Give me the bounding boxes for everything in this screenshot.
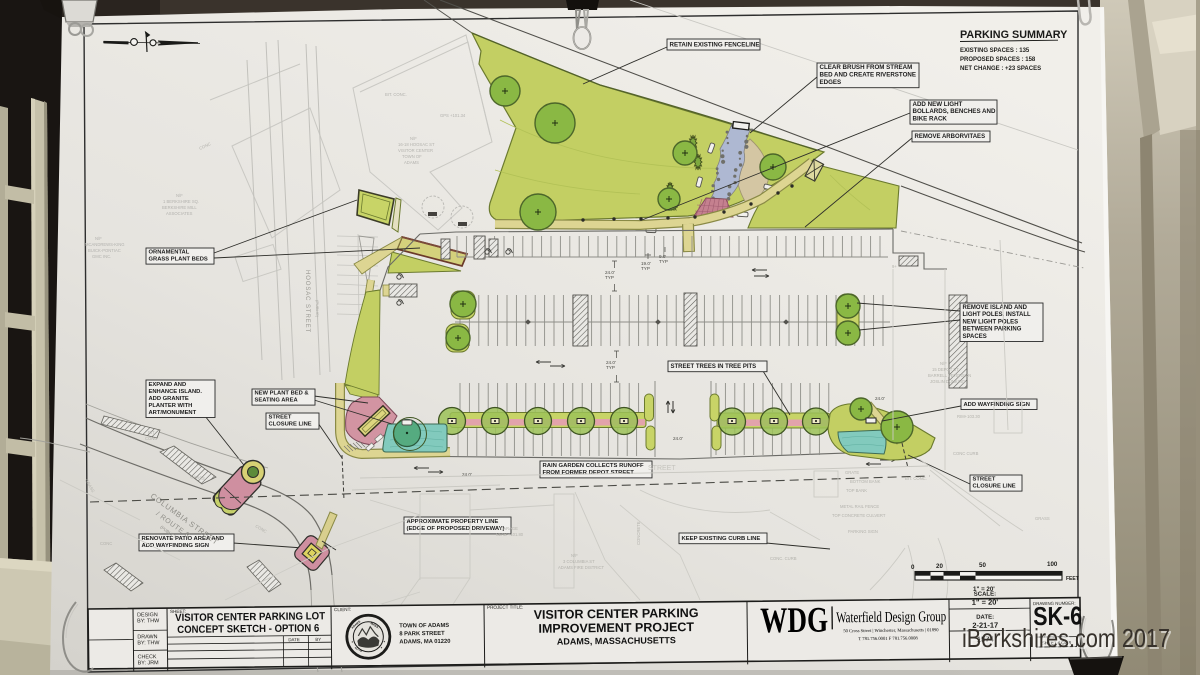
svg-text:MCANDREWS-KING: MCANDREWS-KING: [85, 242, 125, 247]
svg-text:BIT. CONC.: BIT. CONC.: [905, 476, 927, 481]
svg-text:SPACES: SPACES: [963, 334, 987, 340]
svg-text:REMOVE ISLAND AND: REMOVE ISLAND AND: [963, 305, 1028, 311]
svg-text:HOOSAC STREET: HOOSAC STREET: [304, 270, 310, 333]
svg-text:50: 50: [979, 562, 986, 569]
svg-text:Waterfield Design Group: Waterfield Design Group: [836, 609, 946, 626]
svg-text:FEET: FEET: [1066, 576, 1079, 582]
svg-text:(EDGE OF PROPOSED DRIVEWAY): (EDGE OF PROPOSED DRIVEWAY): [407, 526, 505, 532]
svg-text:BY: THW: BY: THW: [137, 640, 160, 646]
svg-text:EDGES: EDGES: [820, 79, 842, 86]
svg-text:NEW PLANT BED &: NEW PLANT BED &: [255, 391, 309, 397]
svg-text:KEEP EXISTING CURB LINE: KEEP EXISTING CURB LINE: [682, 536, 761, 542]
svg-text:PARKING SUMMARY: PARKING SUMMARY: [960, 29, 1068, 41]
svg-text:BIT.: BIT.: [148, 430, 155, 435]
svg-text:ENHANCE ISLAND.: ENHANCE ISLAND.: [149, 389, 203, 395]
svg-text:CONC. CURB: CONC. CURB: [770, 556, 797, 561]
svg-text:ORNAMENTAL: ORNAMENTAL: [149, 250, 190, 256]
svg-text:NEW LIGHT POLES: NEW LIGHT POLES: [963, 319, 1019, 325]
svg-text:PARKING SIGN: PARKING SIGN: [848, 529, 878, 534]
svg-text:TYP: TYP: [605, 275, 614, 280]
svg-text:N/F: N/F: [571, 553, 578, 558]
svg-text:BUICK-PONTIAC: BUICK-PONTIAC: [88, 248, 121, 253]
svg-text:TYP: TYP: [659, 259, 668, 264]
svg-text:CLEAR BRUSH FROM STREAM: CLEAR BRUSH FROM STREAM: [820, 64, 913, 71]
svg-text:TYP: TYP: [606, 365, 615, 370]
svg-text:GMC INC.: GMC INC.: [92, 254, 111, 259]
svg-text:T 781.756.0001 F 781.756.000: T 781.756.0001 F 781.756.0008: [858, 635, 918, 641]
svg-text:STREET TREES IN TREE PITS: STREET TREES IN TREE PITS: [671, 364, 757, 370]
svg-text:METAL RAIL FENCE: METAL RAIL FENCE: [840, 504, 879, 509]
svg-text:TYP: TYP: [641, 266, 650, 271]
svg-text:SLAB +101.80: SLAB +101.80: [496, 532, 524, 537]
svg-text:CLIENT:: CLIENT:: [334, 607, 351, 612]
svg-text:BARRELL PETERSON: BARRELL PETERSON: [928, 373, 971, 378]
svg-text:9+: 9+: [892, 264, 897, 269]
svg-text:CLOSURE LINE: CLOSURE LINE: [269, 421, 312, 427]
svg-text:iBerkshires.com 2017: iBerkshires.com 2017: [962, 623, 1170, 653]
svg-text:BED AND CREATE RIVERSTONE: BED AND CREATE RIVERSTONE: [820, 72, 917, 79]
svg-text:24.0': 24.0': [875, 396, 885, 401]
svg-text:ADAMS: ADAMS: [404, 160, 419, 165]
svg-text:GARAGE: GARAGE: [500, 526, 518, 531]
svg-text:24.0': 24.0': [673, 436, 683, 441]
svg-text:3 COLUMBIA ST: 3 COLUMBIA ST: [563, 559, 595, 564]
svg-text:100: 100: [1047, 561, 1058, 568]
svg-text:LIGHT POLES. INSTALL: LIGHT POLES. INSTALL: [963, 312, 1032, 318]
svg-text:BOLLARDS, BENCHES AND: BOLLARDS, BENCHES AND: [913, 108, 996, 115]
svg-text:8 PARK STREET: 8 PARK STREET: [399, 631, 445, 638]
svg-text:RETAIN EXISTING FENCELINE: RETAIN EXISTING FENCELINE: [670, 41, 760, 48]
svg-text:TOP BANK: TOP BANK: [846, 488, 867, 493]
svg-text:WDG: WDG: [760, 599, 828, 640]
svg-text:TOP CONCRETE CULVERT: TOP CONCRETE CULVERT: [832, 513, 886, 518]
svg-text:REMOVE ARBORVITAES: REMOVE ARBORVITAES: [915, 134, 986, 140]
svg-text:1" = 20': 1" = 20': [972, 598, 999, 607]
svg-text:EXPAND AND: EXPAND AND: [149, 382, 187, 388]
svg-text:STREET: STREET: [648, 465, 676, 472]
svg-text:CONC: CONC: [100, 541, 112, 546]
svg-text:1 BERKSHIRE SQ.: 1 BERKSHIRE SQ.: [163, 199, 199, 204]
svg-text:16-18 HOOSAC ST: 16-18 HOOSAC ST: [398, 142, 435, 147]
svg-text:PROPOSED SPACES : 158: PROPOSED SPACES : 158: [960, 57, 1036, 63]
svg-text:STREET: STREET: [269, 415, 292, 421]
svg-text:CONC: CONC: [145, 436, 157, 441]
svg-text:PROJECT TITLE:: PROJECT TITLE:: [487, 604, 523, 609]
svg-text:VISITOR CENTER: VISITOR CENTER: [398, 148, 433, 153]
svg-text:GRATE: GRATE: [845, 470, 859, 475]
svg-text:N/F: N/F: [410, 136, 417, 141]
svg-text:BETWEEN PARKING: BETWEEN PARKING: [963, 327, 1022, 333]
svg-text:ADD WAYFINDING SIGN: ADD WAYFINDING SIGN: [964, 402, 1030, 408]
svg-text:GPS +101.34: GPS +101.34: [440, 113, 466, 118]
svg-text:BOTTOM BANK: BOTTOM BANK: [850, 479, 881, 484]
svg-text:N/F: N/F: [940, 361, 947, 366]
svg-text:JOSLIN DUNKING: JOSLIN DUNKING: [930, 379, 965, 384]
svg-text:BIKE RACK: BIKE RACK: [913, 115, 948, 122]
svg-text:BIT. CONC.: BIT. CONC.: [385, 92, 407, 97]
svg-text:EXISTING SPACES : 135: EXISTING SPACES : 135: [960, 48, 1030, 54]
svg-text:ASSOCIATES: ASSOCIATES: [166, 211, 193, 216]
svg-text:BERKSHIRE MILL: BERKSHIRE MILL: [162, 205, 197, 210]
svg-text:N/F: N/F: [95, 236, 102, 241]
svg-text:ADAMS FIRE DISTRICT: ADAMS FIRE DISTRICT: [558, 565, 605, 570]
svg-text:CONCEPT SKETCH - OPTION 6: CONCEPT SKETCH - OPTION 6: [177, 622, 319, 636]
svg-text:TOWN OF: TOWN OF: [402, 154, 422, 159]
svg-text:ADD GRANITE: ADD GRANITE: [149, 396, 189, 402]
svg-text:CONC CURB: CONC CURB: [953, 451, 979, 456]
svg-text:BY: THW: BY: THW: [137, 618, 160, 624]
svg-text:CONCRETE: CONCRETE: [636, 521, 641, 545]
svg-text:PLANTER WITH: PLANTER WITH: [149, 403, 193, 409]
svg-text:BY: JRM: BY: JRM: [138, 660, 160, 666]
svg-text:SEATING AREA: SEATING AREA: [255, 397, 299, 403]
svg-text:DATE: DATE: [288, 637, 300, 642]
svg-text:NET CHANGE : +23 SPACES: NET CHANGE : +23 SPACES: [960, 66, 1041, 72]
svg-text:CLOSURE LINE: CLOSURE LINE: [973, 483, 1016, 489]
svg-text:GRASS: GRASS: [1035, 516, 1050, 521]
svg-text:ART/MONUMENT: ART/MONUMENT: [149, 410, 197, 416]
svg-text:RAIN GARDEN COLLECTS RUNOFF: RAIN GARDEN COLLECTS RUNOFF: [543, 463, 645, 469]
svg-text:20: 20: [936, 563, 943, 570]
svg-text:0: 0: [911, 564, 915, 571]
svg-text:N/F: N/F: [176, 193, 183, 198]
svg-text:BY: BY: [315, 637, 321, 642]
svg-text:STREET: STREET: [973, 477, 996, 483]
svg-text:(PUBLIC): (PUBLIC): [315, 300, 320, 318]
svg-text:ADAMS, MASSACHUSETTS: ADAMS, MASSACHUSETTS: [557, 635, 676, 646]
svg-text:RIM+103.30: RIM+103.30: [957, 414, 981, 419]
svg-text:ADD NEW LIGHT: ADD NEW LIGHT: [913, 101, 963, 108]
svg-text:IMPROVEMENT PROJECT: IMPROVEMENT PROJECT: [538, 620, 694, 636]
svg-text:15 DEPOT ST: 15 DEPOT ST: [932, 367, 959, 372]
svg-text:ADAMS, MA 01220: ADAMS, MA 01220: [399, 639, 450, 646]
svg-text:GRASS PLANT BEDS: GRASS PLANT BEDS: [149, 256, 208, 262]
svg-text:TOWN OF ADAMS: TOWN OF ADAMS: [399, 623, 449, 630]
